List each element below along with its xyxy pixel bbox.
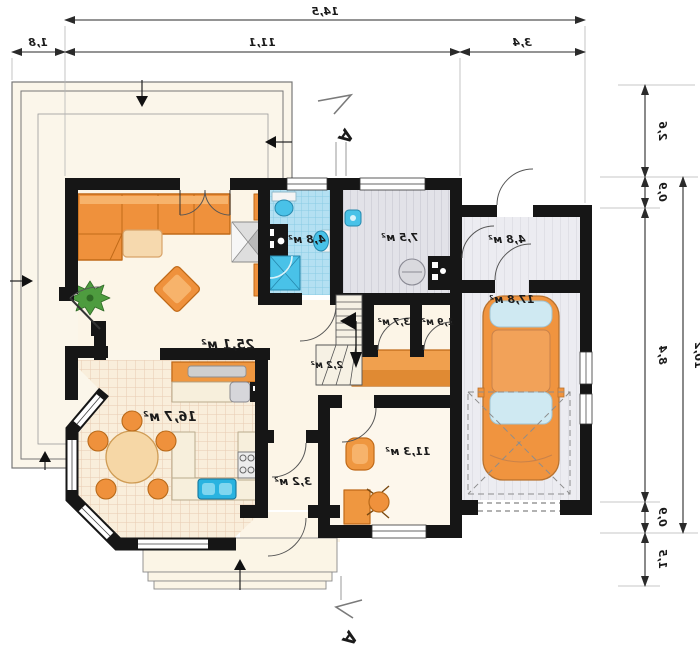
dim-right-seg-4: 0,9 xyxy=(656,507,669,527)
section-marker-bottom: A xyxy=(336,576,362,645)
garage-window-1 xyxy=(580,352,592,384)
office-armchair xyxy=(346,438,374,470)
dim-right-seg-2: 0,9 xyxy=(656,182,669,202)
car xyxy=(478,296,564,480)
section-letter-top: A xyxy=(333,124,357,147)
label-utility: 7,5 м² xyxy=(381,231,418,244)
kitchen-counter-top xyxy=(172,362,264,382)
dining-table xyxy=(106,431,158,483)
label-wardrobe: 1,9 м² xyxy=(421,317,454,328)
office-window xyxy=(372,525,426,538)
dim-right-seg-3: 8,4 xyxy=(656,345,669,365)
stove xyxy=(238,452,256,478)
dim-top-seg-3: 3,4 xyxy=(512,36,532,49)
garage-contents xyxy=(468,296,570,494)
label-kitchen: 16,7 м² xyxy=(143,410,196,425)
section-letter-bottom: A xyxy=(337,626,361,645)
garage-door xyxy=(478,500,560,515)
section-marker-top: A xyxy=(318,95,358,176)
fridge xyxy=(230,382,250,402)
coffee-table xyxy=(123,230,162,257)
kitchen-appliance-row xyxy=(172,382,268,402)
label-stairs: 2,2 м² xyxy=(310,360,343,371)
desk xyxy=(344,490,370,524)
label-mudroom: 4,8 м² xyxy=(488,233,526,246)
label-office: 11,3 м² xyxy=(385,445,430,458)
dim-right-seg-5: 1,5 xyxy=(656,549,669,569)
kitchen-sink xyxy=(198,479,236,499)
bathroom-window xyxy=(287,178,327,190)
label-living-room: 25,1 м² xyxy=(201,338,254,353)
dim-right-seg-1: 2,6 xyxy=(656,121,669,141)
utility-sink xyxy=(345,210,361,226)
shower xyxy=(270,256,300,290)
dim-top-seg-1: 1,8 xyxy=(28,36,48,49)
floor-plan-screenshot: 14,5 1,8 11,1 3,4 2,6 0,9 8,4 0,9 1,5 10… xyxy=(0,0,700,645)
label-wc: 3,7 м² xyxy=(377,317,410,328)
utility-window xyxy=(360,178,425,190)
label-hall: 3,2 м² xyxy=(274,475,311,488)
dim-right-overall: 10,2 xyxy=(692,341,700,368)
dim-top-overall: 14,5 xyxy=(311,5,338,18)
utility-chimney xyxy=(428,256,450,290)
label-bathroom: 4,8 м² xyxy=(288,233,326,246)
mudroom-exterior-door xyxy=(497,169,533,205)
garage-window-2 xyxy=(580,394,592,424)
dim-top-seg-2: 11,1 xyxy=(248,36,275,49)
floor-plan-svg: 14,5 1,8 11,1 3,4 2,6 0,9 8,4 0,9 1,5 10… xyxy=(0,0,700,645)
label-garage: 17,8 м² xyxy=(489,293,534,306)
